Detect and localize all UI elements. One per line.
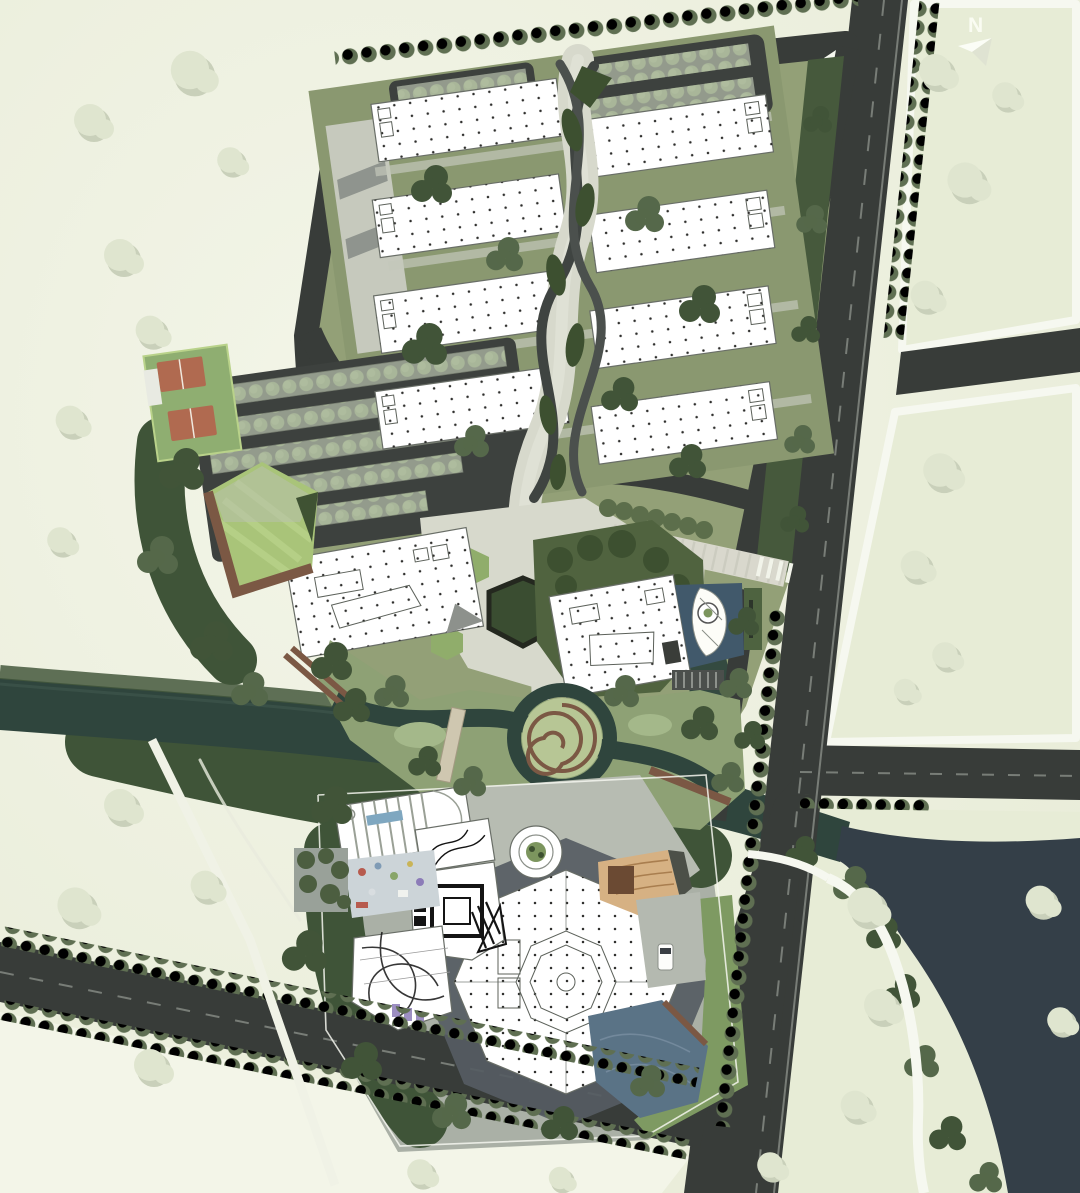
tree-plaza (294, 848, 351, 912)
vehicle (658, 944, 673, 970)
site-plan-map: N (0, 0, 1080, 1193)
north-arrow-label: N (968, 14, 983, 37)
site-plan-canvas: N (0, 0, 1080, 1193)
playground (344, 850, 440, 918)
south-internal-road (636, 892, 706, 988)
round-pavilion (510, 826, 562, 878)
sports-courts (141, 345, 241, 462)
